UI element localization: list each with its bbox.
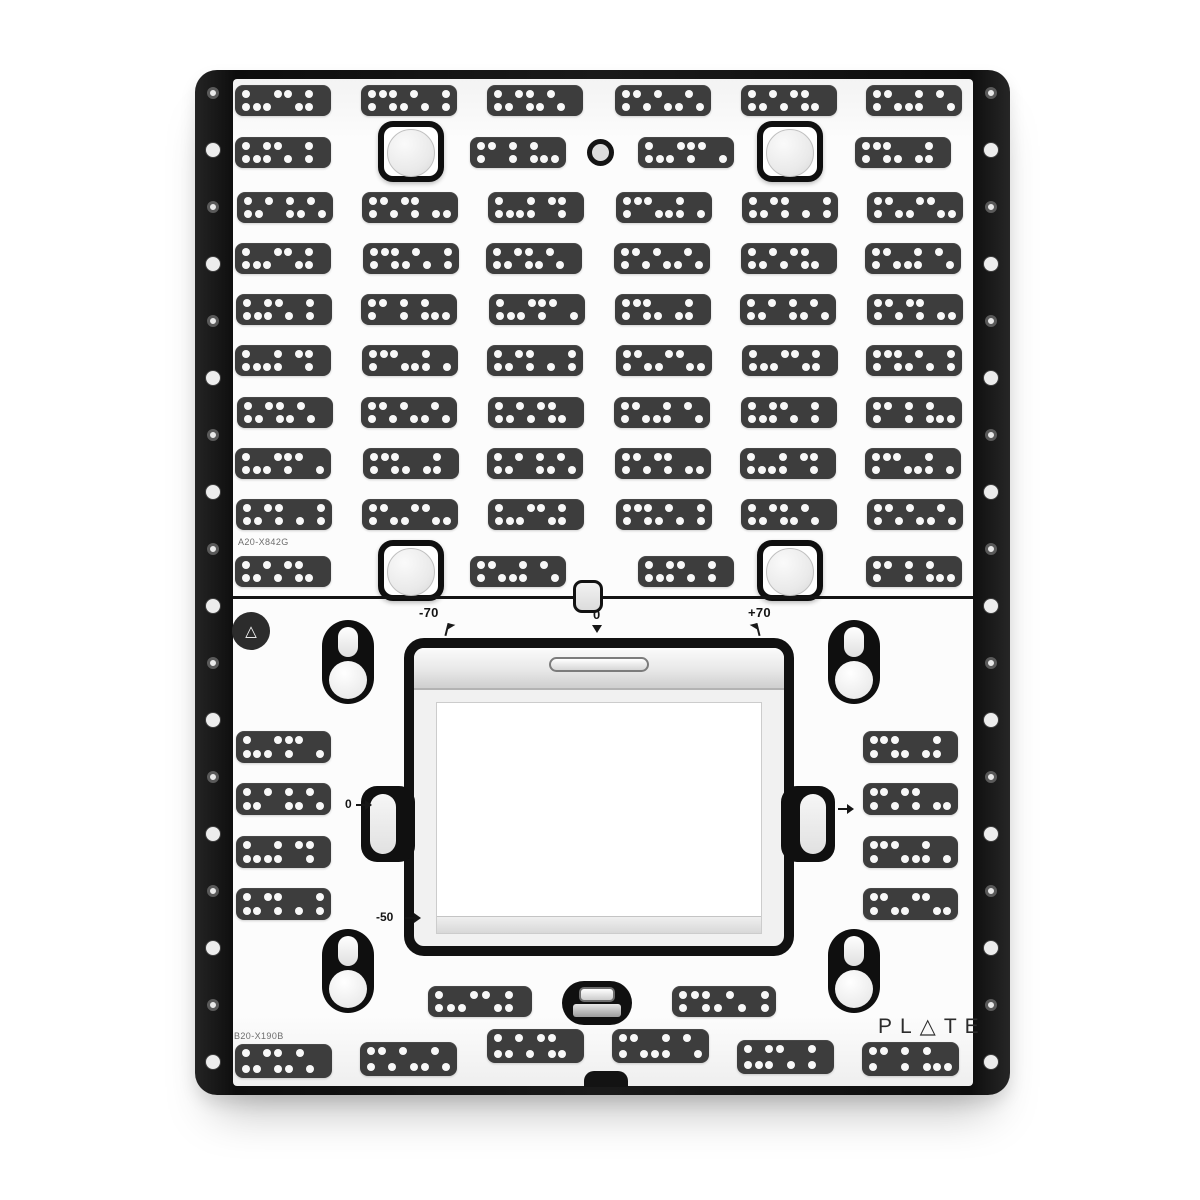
pad-hole: [307, 197, 315, 205]
pad-hole: [894, 155, 902, 163]
pad-hole: [412, 248, 420, 256]
pad-hole: [494, 350, 502, 358]
pad-hole: [685, 90, 693, 98]
pad-hole: [317, 504, 325, 512]
pad-hole: [656, 574, 664, 582]
pad-hole: [906, 504, 914, 512]
mounting-pad: [614, 397, 710, 428]
pad-hole: [284, 155, 292, 163]
pad-hole: [558, 415, 566, 423]
pad-hole: [880, 841, 888, 849]
pad-hole: [537, 504, 545, 512]
pad-hole: [244, 415, 252, 423]
pad-hole: [891, 907, 899, 915]
pad-hole: [276, 402, 284, 410]
mounting-pad: [616, 192, 712, 223]
left-rail-hole: [205, 598, 221, 614]
pad-hole: [801, 90, 809, 98]
pad-hole: [284, 466, 292, 474]
pad-hole: [537, 402, 545, 410]
pad-hole: [431, 312, 439, 320]
pad-hole: [433, 453, 441, 461]
pad-hole: [423, 261, 431, 269]
pad-hole: [514, 248, 522, 256]
pad-hole: [874, 504, 882, 512]
pad-hole: [547, 90, 555, 98]
pad-hole: [943, 802, 951, 810]
pad-hole: [779, 466, 787, 474]
left-rail-hole: [207, 657, 219, 669]
pad-hole: [912, 788, 920, 796]
pad-hole: [401, 517, 409, 525]
pad-hole: [495, 402, 503, 410]
pad-hole: [873, 90, 881, 98]
pad-hole: [726, 991, 734, 999]
pad-hole: [243, 299, 251, 307]
pad-hole: [286, 415, 294, 423]
pad-hole: [390, 210, 398, 218]
pad-hole: [401, 197, 409, 205]
pad-hole: [242, 561, 250, 569]
pad-hole: [759, 517, 767, 525]
pad-hole: [884, 350, 892, 358]
mounting-pad: [236, 294, 332, 325]
mounting-pad: [737, 1040, 834, 1074]
pad-hole: [874, 517, 882, 525]
pad-hole: [768, 466, 776, 474]
part-number-lower: B20-X190B: [234, 1031, 284, 1041]
pad-hole: [655, 363, 663, 371]
pad-hole: [895, 517, 903, 525]
pad-hole: [242, 142, 250, 150]
pad-hole: [369, 350, 377, 358]
pad-hole: [379, 90, 387, 98]
mounting-pad: [361, 294, 457, 325]
left-side-slot: [361, 786, 415, 862]
pad-hole: [933, 907, 941, 915]
mounting-pad: [867, 294, 963, 325]
pad-hole: [891, 841, 899, 849]
mounting-pad: [616, 499, 712, 530]
pad-hole: [400, 103, 408, 111]
pad-hole: [937, 312, 945, 320]
pad-hole: [768, 299, 776, 307]
pad-hole: [862, 155, 870, 163]
pad-hole: [306, 788, 314, 796]
pad-hole: [367, 1047, 375, 1055]
pad-hole: [915, 350, 923, 358]
pad-hole: [790, 517, 798, 525]
pad-hole: [873, 415, 881, 423]
pad-hole: [526, 350, 534, 358]
pad-hole: [274, 1049, 282, 1057]
pad-hole: [447, 1004, 455, 1012]
pad-hole: [916, 517, 924, 525]
mounting-pad: [487, 448, 583, 479]
pad-hole: [758, 312, 766, 320]
pad-hole: [516, 210, 524, 218]
pad-hole: [621, 415, 629, 423]
product-photo: △ -70 0 +70 0 -50 A20-X842G B20-X190B PL…: [0, 0, 1200, 1200]
pad-hole: [926, 561, 934, 569]
pad-hole: [622, 453, 630, 461]
pad-hole: [568, 363, 576, 371]
pad-hole: [891, 802, 899, 810]
pad-hole: [369, 210, 377, 218]
pad-hole: [770, 197, 778, 205]
pad-hole: [305, 574, 313, 582]
pad-hole: [368, 415, 376, 423]
pad-hole: [284, 248, 292, 256]
pad-hole: [926, 363, 934, 371]
pad-hole: [295, 453, 303, 461]
pad-hole: [694, 1050, 702, 1058]
mounting-pad: [487, 1029, 584, 1063]
pad-hole: [749, 350, 757, 358]
pad-hole: [677, 142, 685, 150]
mounting-pad: [866, 345, 962, 376]
mounting-pad: [470, 556, 566, 587]
pad-hole: [901, 1047, 909, 1055]
pad-hole: [316, 802, 324, 810]
pad-hole: [527, 415, 535, 423]
pad-hole: [621, 248, 629, 256]
left-rail-hole: [207, 771, 219, 783]
pad-hole: [422, 363, 430, 371]
pad-hole: [316, 466, 324, 474]
pad-hole: [547, 466, 555, 474]
pad-hole: [619, 1034, 627, 1042]
pad-hole: [948, 517, 956, 525]
mounting-pad: [741, 397, 837, 428]
pad-hole: [305, 248, 313, 256]
mounting-pad: [863, 888, 958, 920]
pad-hole: [749, 363, 757, 371]
pad-hole: [621, 261, 629, 269]
pad-hole: [880, 893, 888, 901]
pad-hole: [255, 415, 263, 423]
pad-hole: [509, 155, 517, 163]
pad-hole: [519, 574, 527, 582]
right-rail-hole: [983, 712, 999, 728]
pad-hole: [558, 197, 566, 205]
pad-hole: [916, 197, 924, 205]
pad-hole: [801, 261, 809, 269]
pad-hole: [369, 197, 377, 205]
pad-hole: [242, 574, 250, 582]
pad-hole: [944, 1063, 952, 1071]
pad-hole: [769, 90, 777, 98]
mounting-pad: [236, 731, 331, 763]
pad-hole: [253, 466, 261, 474]
pad-hole: [368, 90, 376, 98]
pad-hole: [801, 248, 809, 256]
mounting-pad: [236, 783, 331, 815]
mounting-pad: [865, 448, 961, 479]
pad-hole: [895, 312, 903, 320]
pad-hole: [505, 466, 513, 474]
pad-hole: [747, 312, 755, 320]
mounting-pad: [638, 137, 734, 168]
pad-hole: [811, 261, 819, 269]
pad-hole: [634, 350, 642, 358]
pad-hole: [442, 415, 450, 423]
pad-hole: [305, 261, 313, 269]
keyhole-upper: [844, 627, 864, 657]
right-slot-tick: [838, 808, 847, 810]
height-minus50-arrow: [405, 917, 414, 919]
pad-hole: [442, 1063, 450, 1071]
height-zero-label: 0: [345, 797, 352, 811]
pad-hole: [285, 736, 293, 744]
right-rail-hole: [983, 484, 999, 500]
mounting-pad: [236, 499, 332, 530]
pad-hole: [885, 197, 893, 205]
mounting-pad: [863, 783, 958, 815]
pad-hole: [242, 1065, 250, 1073]
pad-hole: [253, 855, 261, 863]
pad-hole: [662, 1050, 670, 1058]
pad-hole: [568, 350, 576, 358]
pad-hole: [901, 1063, 909, 1071]
pad-hole: [901, 855, 909, 863]
pad-hole: [390, 350, 398, 358]
pad-hole: [623, 197, 631, 205]
pad-hole: [496, 299, 504, 307]
pad-hole: [493, 248, 501, 256]
pad-hole: [645, 561, 653, 569]
left-rail-hole: [205, 484, 221, 500]
pad-hole: [242, 453, 250, 461]
right-rail-hole: [985, 999, 997, 1011]
pad-hole: [937, 504, 945, 512]
pad-hole: [943, 907, 951, 915]
keyhole-circle: [329, 970, 367, 1008]
pad-hole: [870, 841, 878, 849]
left-rail-hole: [207, 543, 219, 555]
pad-hole: [748, 103, 756, 111]
pad-hole: [708, 574, 716, 582]
pad-hole: [760, 210, 768, 218]
pad-hole: [790, 415, 798, 423]
pad-hole: [242, 363, 250, 371]
pad-hole: [927, 517, 935, 525]
mounting-pad: [488, 499, 584, 530]
pad-hole: [494, 1034, 502, 1042]
pad-hole: [946, 466, 954, 474]
pad-hole: [622, 103, 630, 111]
pad-hole: [295, 350, 303, 358]
pad-hole: [505, 103, 513, 111]
pad-hole: [893, 453, 901, 461]
pad-hole: [872, 248, 880, 256]
pad-hole: [505, 363, 513, 371]
pad-hole: [812, 350, 820, 358]
pad-hole: [904, 261, 912, 269]
pad-hole: [758, 466, 766, 474]
pad-hole: [642, 261, 650, 269]
pad-hole: [901, 788, 909, 796]
pad-hole: [263, 561, 271, 569]
pad-hole: [677, 561, 685, 569]
pad-hole: [551, 155, 559, 163]
pad-hole: [495, 210, 503, 218]
pad-hole: [947, 103, 955, 111]
pad-hole: [780, 261, 788, 269]
pad-hole: [389, 415, 397, 423]
pad-hole: [947, 415, 955, 423]
pad-hole: [494, 103, 502, 111]
pad-hole: [421, 1063, 429, 1071]
pad-hole: [653, 415, 661, 423]
pad-hole: [243, 736, 251, 744]
mounting-pad: [487, 85, 583, 116]
pad-hole: [666, 574, 674, 582]
pad-hole: [369, 504, 377, 512]
pad-hole: [870, 736, 878, 744]
mounting-pad: [740, 294, 836, 325]
pad-hole: [759, 103, 767, 111]
pad-hole: [883, 453, 891, 461]
pad-hole: [933, 736, 941, 744]
pad-hole: [925, 155, 933, 163]
pad-hole: [923, 1063, 931, 1071]
pad-hole: [443, 210, 451, 218]
pad-hole: [823, 210, 831, 218]
left-rail-hole: [205, 712, 221, 728]
mounting-pad: [235, 243, 331, 274]
keyhole-upper: [338, 936, 358, 966]
pilot-hole: [587, 139, 614, 166]
tilt-tick-center: [592, 625, 602, 633]
pad-hole: [633, 453, 641, 461]
mounting-pad: [863, 836, 958, 868]
pad-hole: [432, 210, 440, 218]
pad-hole: [254, 312, 262, 320]
pad-hole: [873, 402, 881, 410]
pad-hole: [380, 197, 388, 205]
bracket-circle: [766, 129, 814, 177]
pad-hole: [936, 415, 944, 423]
pad-hole: [925, 453, 933, 461]
pad-hole: [243, 855, 251, 863]
pad-hole: [380, 350, 388, 358]
pad-hole: [780, 517, 788, 525]
left-rail-hole: [205, 370, 221, 386]
pad-hole: [368, 299, 376, 307]
pad-hole: [263, 466, 271, 474]
pad-hole: [530, 155, 538, 163]
pad-hole: [884, 561, 892, 569]
keyhole-circle: [329, 661, 367, 699]
pad-hole: [925, 142, 933, 150]
pad-hole: [274, 453, 282, 461]
pad-hole: [548, 197, 556, 205]
pad-hole: [691, 991, 699, 999]
pad-hole: [400, 299, 408, 307]
pad-hole: [488, 142, 496, 150]
pad-hole: [242, 466, 250, 474]
pad-hole: [811, 103, 819, 111]
pad-hole: [914, 466, 922, 474]
pad-hole: [776, 1045, 784, 1053]
pad-hole: [433, 466, 441, 474]
pad-hole: [243, 312, 251, 320]
pad-hole: [284, 561, 292, 569]
center-opening: [404, 638, 794, 956]
pad-hole: [633, 299, 641, 307]
pad-hole: [808, 1061, 816, 1069]
pad-hole: [872, 466, 880, 474]
mounting-pad: [614, 243, 710, 274]
mounting-pad: [741, 243, 837, 274]
mounting-pad: [361, 397, 457, 428]
pad-hole: [905, 363, 913, 371]
mount-bracket: [378, 121, 444, 182]
pad-hole: [442, 312, 450, 320]
part-number-upper: A20-X842G: [238, 537, 289, 547]
triangle-glyph: △: [245, 624, 257, 639]
pad-hole: [286, 210, 294, 218]
pad-hole: [506, 517, 514, 525]
pad-hole: [242, 261, 250, 269]
pad-hole: [922, 893, 930, 901]
pad-hole: [243, 517, 251, 525]
pad-hole: [286, 197, 294, 205]
pad-hole: [926, 415, 934, 423]
pad-hole: [370, 466, 378, 474]
pad-hole: [663, 402, 671, 410]
pad-hole: [264, 893, 272, 901]
pad-hole: [744, 1045, 752, 1053]
pad-hole: [885, 299, 893, 307]
pad-hole: [548, 415, 556, 423]
pad-hole: [632, 402, 640, 410]
pad-hole: [687, 574, 695, 582]
pad-hole: [482, 991, 490, 999]
pad-hole: [642, 415, 650, 423]
pad-hole: [411, 363, 419, 371]
pad-hole: [253, 750, 261, 758]
pad-hole: [655, 517, 663, 525]
pad-hole: [663, 261, 671, 269]
pad-hole: [557, 103, 565, 111]
right-rail-hole: [985, 885, 997, 897]
keyhole-circle: [835, 970, 873, 1008]
pad-hole: [884, 90, 892, 98]
pad-hole: [391, 261, 399, 269]
left-rail-hole: [205, 826, 221, 842]
pad-hole: [623, 504, 631, 512]
pad-hole: [666, 561, 674, 569]
mounting-pad: [235, 1044, 332, 1078]
pad-hole: [936, 90, 944, 98]
right-rail-hole: [983, 940, 999, 956]
pad-hole: [894, 350, 902, 358]
pad-hole: [400, 312, 408, 320]
pad-hole: [643, 312, 651, 320]
pad-hole: [664, 103, 672, 111]
pad-hole: [874, 299, 882, 307]
mounting-pad: [486, 243, 582, 274]
pad-hole: [509, 574, 517, 582]
pad-hole: [242, 350, 250, 358]
mounting-pad: [235, 448, 331, 479]
pad-hole: [274, 736, 282, 744]
pad-hole: [623, 517, 631, 525]
left-rail-hole: [207, 315, 219, 327]
pad-hole: [443, 517, 451, 525]
